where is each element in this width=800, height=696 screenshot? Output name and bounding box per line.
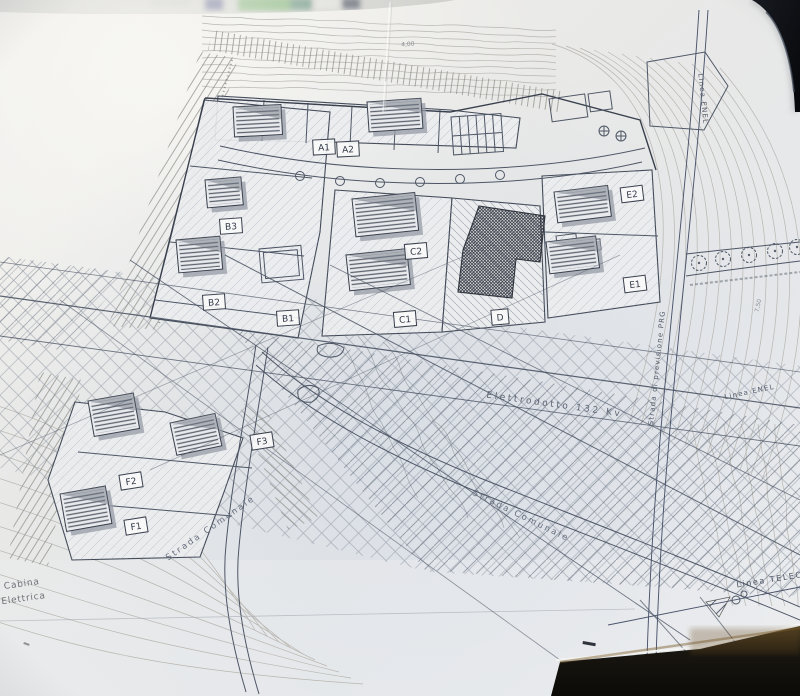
site-plan-canvas: A1 A2 B3 B2 B1 C2 C1 D E2 E1 F3 F2 F1 St… (0, 0, 800, 696)
table-brown-glow (690, 628, 800, 654)
vignette (0, 0, 800, 696)
photographed-site-plan: A1 A2 B3 B2 B1 C2 C1 D E2 E1 F3 F2 F1 St… (0, 0, 800, 696)
photo-artifacts (0, 0, 800, 696)
